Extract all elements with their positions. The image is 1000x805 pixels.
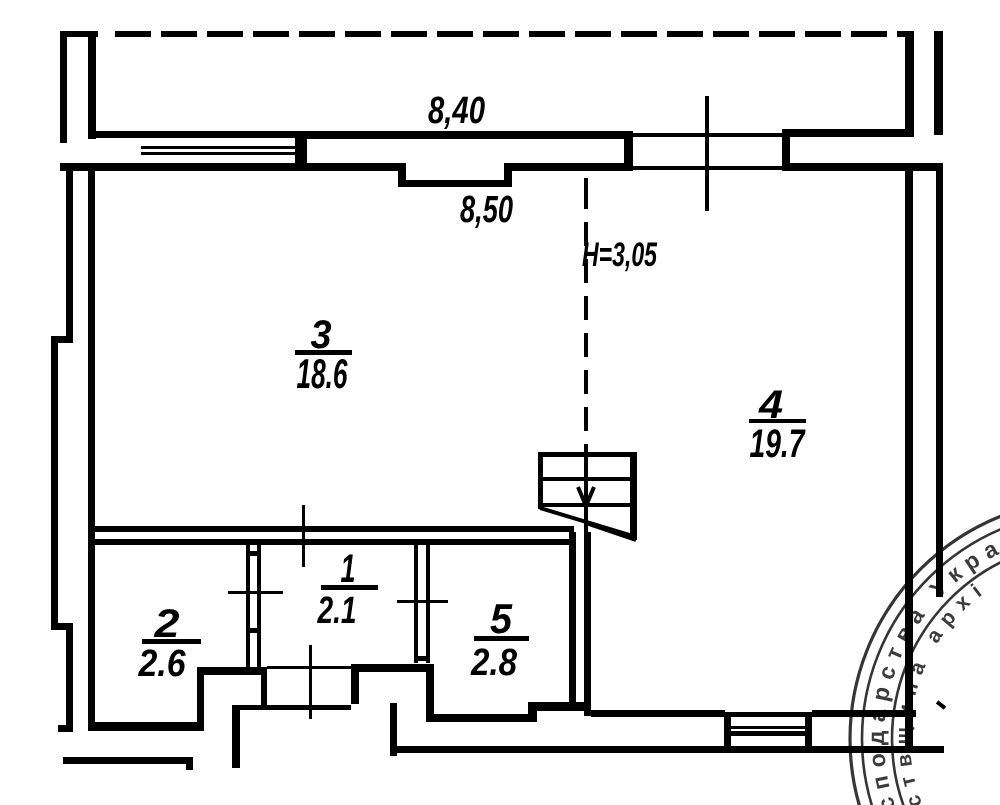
svg-text:2.1: 2.1 <box>317 590 357 632</box>
svg-text:18.6: 18.6 <box>297 350 348 397</box>
svg-text:2.8: 2.8 <box>470 642 518 684</box>
svg-text:H=3,05: H=3,05 <box>582 236 658 274</box>
svg-text:8,50: 8,50 <box>460 189 513 231</box>
svg-text:5: 5 <box>490 595 513 642</box>
svg-text:8,40: 8,40 <box>428 90 485 132</box>
svg-text:2.6: 2.6 <box>138 643 187 685</box>
svg-text:1: 1 <box>341 547 356 591</box>
svg-text:19.7: 19.7 <box>750 422 806 466</box>
